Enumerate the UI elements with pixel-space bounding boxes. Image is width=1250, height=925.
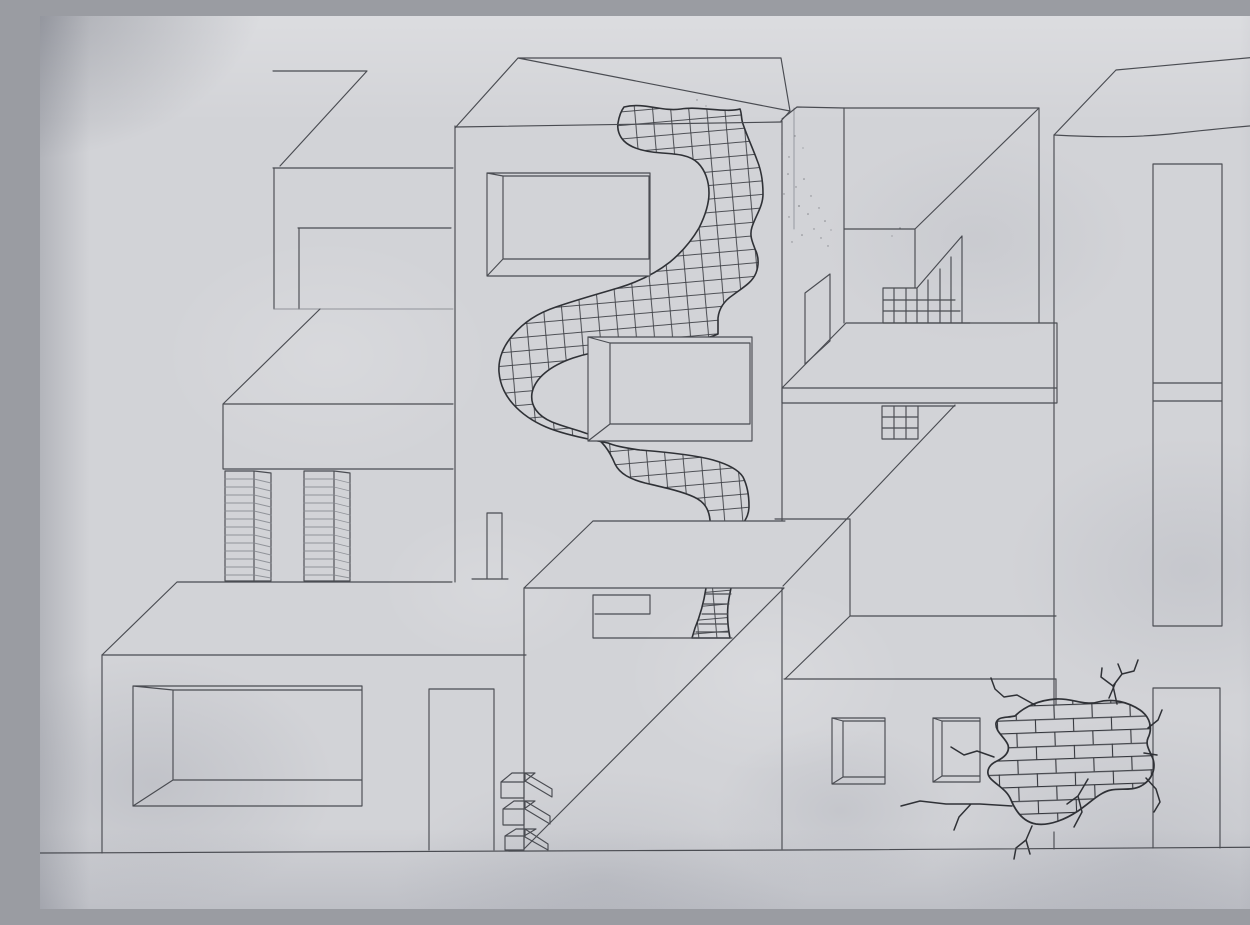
- tower-door: [472, 513, 508, 579]
- tall-window: [1153, 164, 1222, 626]
- wall-window-1: [832, 718, 885, 784]
- right-doorway: [1153, 688, 1220, 848]
- open-door-panel: [805, 274, 830, 364]
- back-wall: [844, 108, 1039, 323]
- cracked-hole: [901, 660, 1162, 859]
- interior-corner: [844, 108, 1039, 288]
- bl-roof-edges: [102, 582, 452, 655]
- left-slab-and-columns: [223, 309, 453, 581]
- center-lower-box: [501, 521, 785, 850]
- left-building-roof: [273, 71, 367, 166]
- hole-outline-and-bricks: [988, 699, 1154, 824]
- box-top-face: [524, 521, 785, 588]
- corner-bricks: [501, 773, 552, 850]
- slab: [223, 309, 453, 469]
- bl-doorway: [429, 689, 494, 850]
- center-tower: [455, 58, 794, 849]
- small-grid: [882, 406, 955, 439]
- hatched-column-1: [225, 471, 271, 581]
- pencil-drawing-photo: [40, 16, 1250, 909]
- bl-opening: [133, 686, 362, 806]
- left-building-ledge: [298, 228, 451, 309]
- left-building: [273, 71, 453, 309]
- sketch-svg: [40, 16, 1250, 909]
- box-diagonal: [524, 588, 784, 849]
- balcony-slab: [782, 323, 1057, 403]
- lower-interior-lines: [775, 405, 1056, 679]
- right-courtyard: [775, 107, 1057, 679]
- ceiling-edge: [782, 107, 844, 119]
- tower-window-lower: [588, 337, 752, 441]
- right-building-roof: [1054, 54, 1250, 135]
- bottom-left-building: [102, 582, 526, 853]
- stepped-railing-grid: [883, 236, 970, 323]
- tower-window-upper: [487, 173, 650, 276]
- right-building-top-edge: [1054, 123, 1250, 137]
- hatched-column-2: [304, 471, 350, 581]
- ground-line: [40, 847, 1250, 853]
